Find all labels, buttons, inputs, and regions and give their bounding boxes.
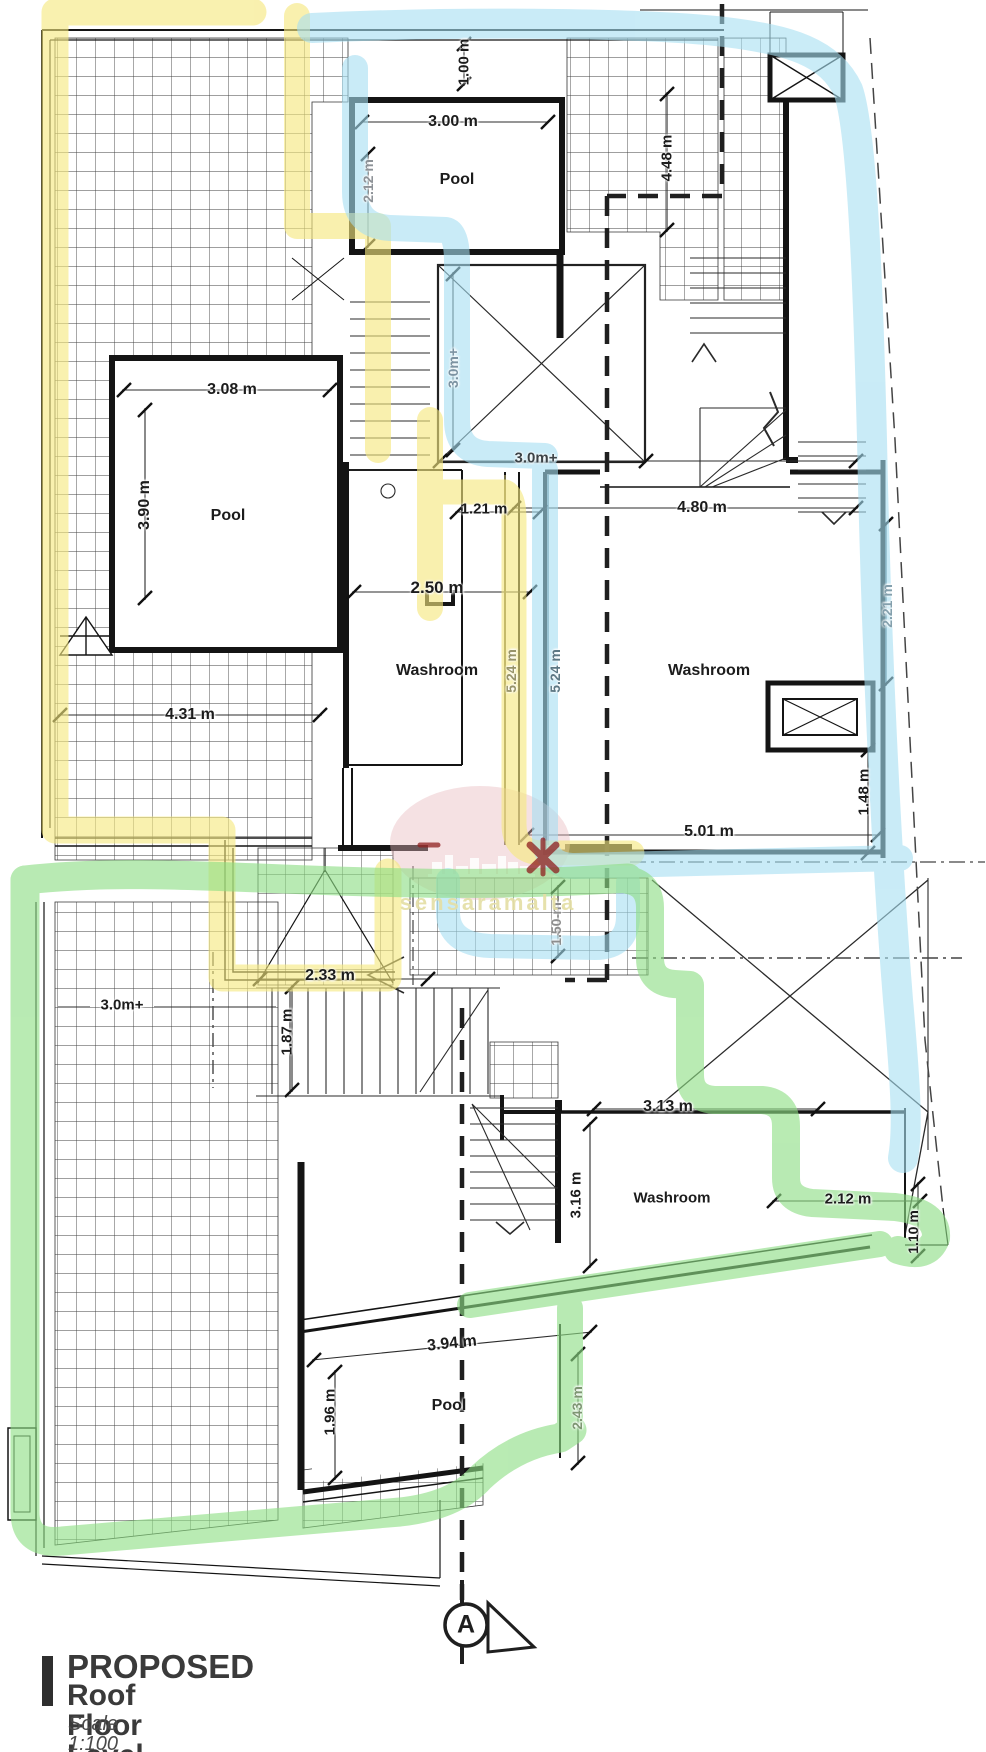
dimension-label: 3.08 m [207,381,257,399]
dimension-label: 5.01 m [684,823,734,841]
dimension-label: 1.00 m [456,39,473,86]
dimension-label: 3.0m+ [445,348,461,388]
watermark-text: sensaramalta [400,890,577,916]
room-label: Washroom [396,662,478,680]
dimension-label: 3.90 m [136,480,154,530]
dimension-label: 4.48 m [659,135,676,182]
room-label: Pool [432,1397,467,1415]
plan-drawing [0,0,986,1752]
room-label: Washroom [668,662,750,680]
room-label: Pool [440,171,475,189]
dimension-label: 4.31 m [165,706,215,724]
room-label: Pool [211,507,246,525]
dimension-label: 2.12 m [825,1191,872,1208]
dimension-label: 2.33 m [305,967,355,985]
dimension-label: 5.24 m [503,649,519,693]
dimension-label: 3.0m+ [515,450,558,467]
dimension-label: 2.43 m [569,1386,585,1430]
dimension-label: 1.10 m [905,1210,921,1254]
dimension-label: 2.12 m [360,159,376,203]
dimension-label: 1.87 m [279,1009,296,1056]
dimension-label: 4.80 m [677,499,727,517]
dimension-label: 1.48 m [856,769,873,816]
room-label: Washroom [634,1190,711,1207]
dimension-label: 3.0m+ [101,997,144,1014]
dimension-label: 2.50 m [411,578,464,598]
dimension-label: 3.00 m [428,113,478,131]
dimension-label: 2.21 m [879,584,895,628]
dimension-label: 5.24 m [547,649,563,693]
section-marker-label: A [457,1611,475,1640]
dimension-label: 1.96 m [322,1389,339,1436]
drawing-scale: Scale 1:100 [68,1714,118,1752]
dimension-label: 1.21 m [461,501,508,518]
floor-plan-page: 1.00 m3.00 m2.12 mPool4.48 m3.08 m3.90 m… [0,0,986,1752]
dimension-label: 3.13 m [643,1098,693,1116]
title-bar-icon [42,1656,53,1706]
dimension-label: 3.16 m [568,1172,585,1219]
